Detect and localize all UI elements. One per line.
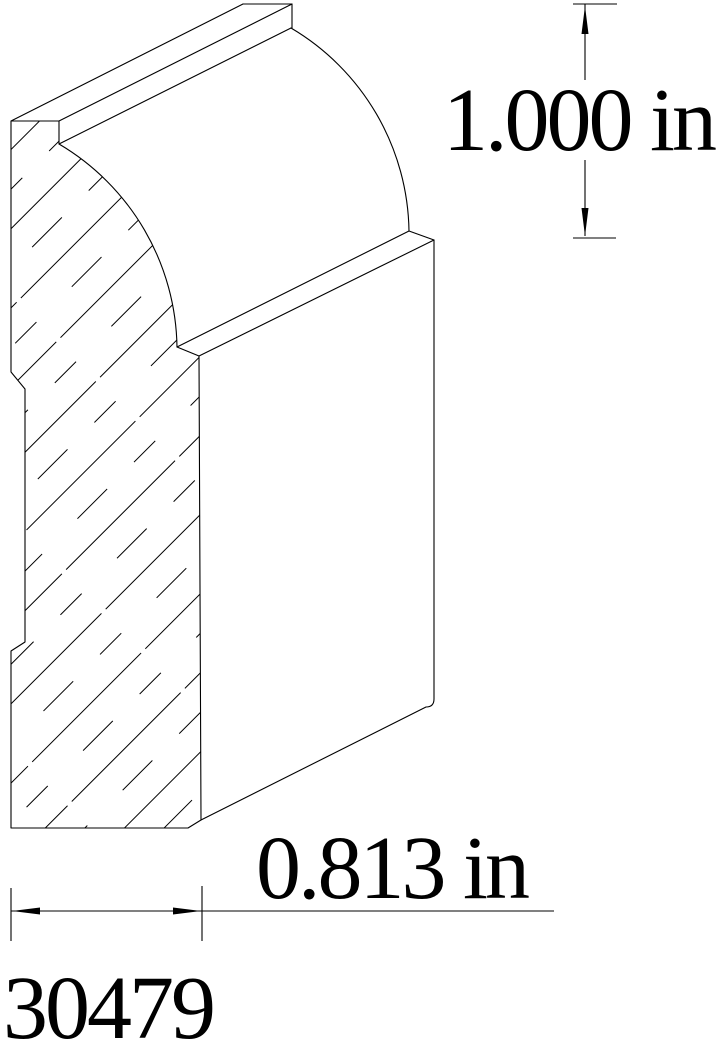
height-dimension-label: 1.000 in: [443, 71, 716, 170]
molding-profile-drawing: 1.000 in 0.813 in 30479: [0, 0, 717, 1056]
part-number-label: 30479: [3, 959, 213, 1056]
width-dimension-label: 0.813 in: [256, 819, 529, 918]
